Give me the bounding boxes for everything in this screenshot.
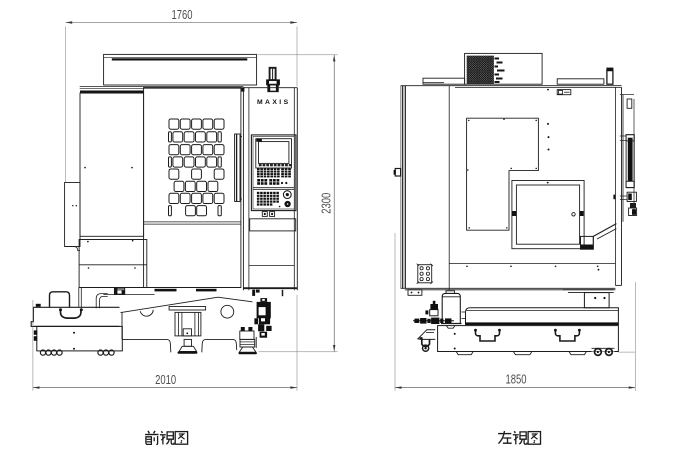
svg-text:1760: 1760	[172, 7, 193, 22]
svg-text:1850: 1850	[506, 372, 527, 387]
svg-text:2300: 2300	[319, 193, 334, 214]
svg-text:2010: 2010	[155, 372, 176, 387]
svg-text:MAXIS: MAXIS	[257, 99, 289, 106]
